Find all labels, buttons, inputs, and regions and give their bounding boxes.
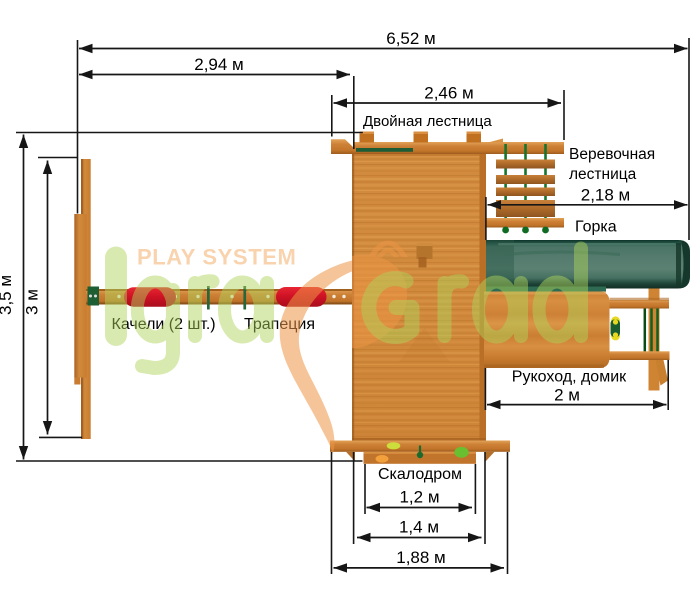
- svg-text:1,2 м: 1,2 м: [399, 488, 439, 507]
- svg-text:Горка: Горка: [575, 219, 617, 236]
- svg-text:3 м: 3 м: [23, 289, 42, 315]
- svg-text:2,94 м: 2,94 м: [194, 55, 244, 74]
- svg-text:2 м: 2 м: [554, 386, 580, 405]
- svg-text:PLAY SYSTEM: PLAY SYSTEM: [137, 245, 296, 270]
- svg-text:2,18 м: 2,18 м: [581, 186, 631, 205]
- svg-text:Скалодром: Скалодром: [378, 466, 462, 483]
- svg-text:2,46 м: 2,46 м: [424, 84, 474, 103]
- svg-text:Двойная лестница: Двойная лестница: [363, 113, 492, 130]
- svg-text:3,5 м: 3,5 м: [0, 275, 15, 315]
- svg-text:1,88 м: 1,88 м: [396, 548, 446, 567]
- svg-text:Рукоход, домик: Рукоход, домик: [512, 369, 627, 386]
- svg-text:1,4 м: 1,4 м: [399, 518, 439, 537]
- svg-text:6,52 м: 6,52 м: [386, 29, 436, 48]
